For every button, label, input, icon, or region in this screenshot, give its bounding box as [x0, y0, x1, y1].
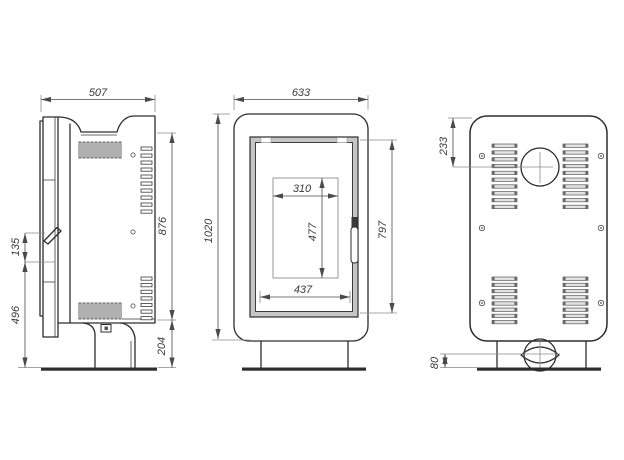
front-base-plate	[242, 368, 366, 371]
side-base-plate	[41, 368, 157, 371]
dim-label-437: 437	[294, 284, 313, 296]
side-screws	[131, 153, 135, 308]
side-body-outline	[58, 116, 155, 323]
dim-label-633: 633	[292, 87, 311, 99]
back-screws	[479, 153, 603, 305]
stove-three-view-drawing: 507 876 204 135 496	[0, 0, 624, 460]
dim-side-width: 507	[41, 87, 155, 112]
dim-handle-height: 496	[10, 262, 41, 368]
dim-label-876: 876	[157, 216, 169, 235]
door-hinge-notch-right	[337, 138, 347, 143]
dim-side-base-height: 204	[156, 320, 176, 368]
back-view: 233 80	[429, 116, 607, 371]
back-base-plate	[477, 368, 601, 371]
front-pedestal	[261, 341, 348, 368]
side-top-vent-grille	[79, 142, 121, 158]
air-inlet	[521, 339, 559, 371]
back-vent-grille-top-right	[563, 144, 588, 209]
dim-label-477: 477	[307, 222, 319, 241]
side-rear-vent-grille-lower	[141, 277, 152, 320]
side-rear-vent-grille-upper	[141, 147, 152, 213]
drawing-canvas: 507 876 204 135 496	[0, 0, 624, 460]
dim-label-797: 797	[377, 220, 389, 239]
dim-label-233: 233	[438, 136, 450, 156]
back-vent-grille-bottom-right	[563, 277, 588, 324]
door-latch	[352, 217, 358, 228]
dim-label-204: 204	[156, 337, 168, 356]
dim-front-width: 633	[234, 87, 368, 110]
side-bottom-vent-grille	[79, 303, 121, 319]
door-hinge-notch-left	[261, 138, 271, 143]
dim-front-total-height: 1020	[203, 114, 250, 340]
dim-door-height: 797	[360, 140, 397, 313]
side-view: 507 876 204 135 496	[10, 87, 176, 371]
back-body-outline	[470, 116, 607, 341]
dim-label-496: 496	[10, 305, 22, 324]
dim-label-135: 135	[10, 237, 22, 256]
dim-label-1020: 1020	[203, 218, 215, 243]
dim-side-panel-height: 876	[157, 133, 176, 320]
back-vent-grille-bottom-left	[492, 277, 517, 324]
dim-label-310: 310	[293, 183, 312, 195]
dim-label-507: 507	[89, 87, 108, 99]
side-door-edge	[40, 117, 58, 337]
door-handle-front	[351, 227, 358, 263]
front-view: 633 1020 310 477 437 797	[203, 87, 397, 371]
back-vent-grille-top-left	[492, 144, 517, 209]
dim-label-80: 80	[429, 356, 441, 369]
